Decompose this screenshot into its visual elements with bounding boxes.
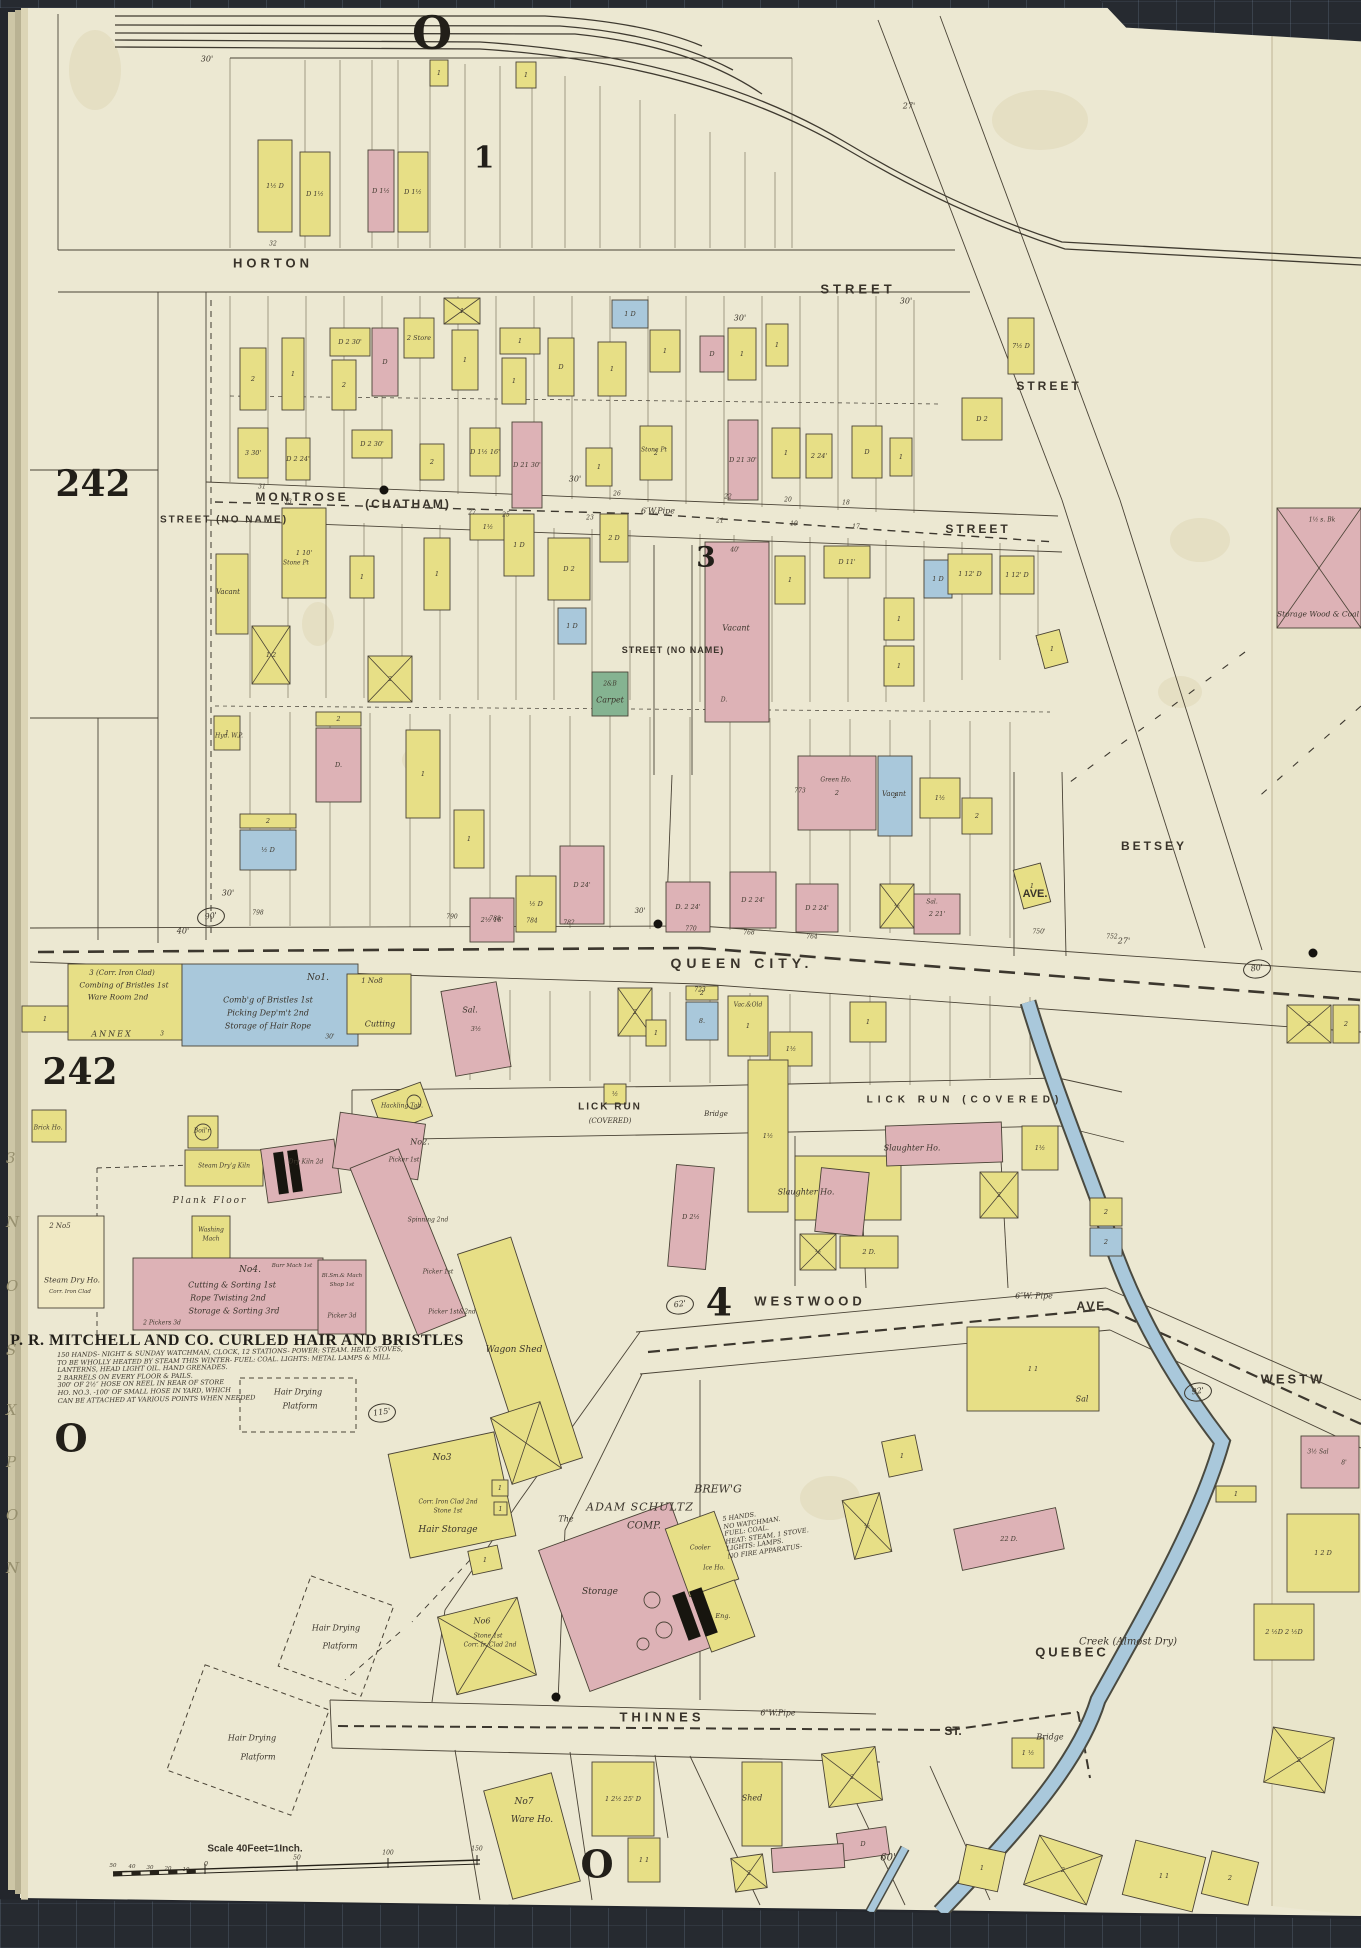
building-footprint [728, 420, 758, 500]
building [1287, 1514, 1359, 1592]
building-footprint [454, 810, 484, 868]
building [316, 728, 361, 802]
scale-bar-box [150, 1871, 159, 1875]
building [282, 338, 304, 410]
building [261, 1139, 342, 1203]
building-footprint [962, 798, 992, 834]
building [800, 1234, 836, 1270]
building [948, 554, 992, 594]
building-footprint [318, 1260, 366, 1334]
sanborn-map-page: 1½ DD 1½D 1½D 1½1121D 2 30'2D2 Store1111… [0, 0, 1361, 1948]
building-footprint [430, 60, 448, 86]
building [1012, 1738, 1044, 1768]
book-page-edge [15, 10, 21, 1894]
building [516, 876, 556, 932]
building [38, 1216, 104, 1308]
building-footprint [772, 428, 800, 478]
building-footprint [1287, 1514, 1359, 1592]
building-footprint [452, 330, 478, 390]
building [558, 608, 586, 644]
building [815, 1168, 869, 1237]
building [548, 338, 574, 396]
building [133, 1258, 323, 1330]
building-footprint [1012, 1738, 1044, 1768]
building-footprint [650, 330, 680, 372]
building-footprint [852, 426, 882, 478]
book-page-edge [8, 12, 15, 1890]
building-footprint [612, 300, 648, 328]
building [728, 420, 758, 500]
building-footprint [958, 1844, 1005, 1891]
scale-bar-box [168, 1870, 177, 1874]
building [516, 62, 536, 88]
building-footprint [470, 898, 514, 942]
building [878, 756, 912, 836]
building-footprint [185, 1150, 263, 1186]
building [470, 428, 500, 476]
building-footprint [352, 430, 392, 458]
building-footprint [806, 434, 832, 478]
building-footprint [332, 360, 356, 410]
building-footprint [766, 324, 788, 366]
building [980, 1172, 1018, 1218]
building-footprint [350, 556, 374, 598]
building-footprint [494, 1502, 507, 1515]
building-footprint [504, 514, 534, 576]
building-footprint [600, 514, 628, 562]
building-footprint [68, 964, 182, 1040]
building [604, 1084, 626, 1104]
building-footprint [316, 712, 361, 726]
building-footprint [560, 846, 604, 924]
building-footprint [686, 986, 718, 1000]
building-footprint [798, 756, 876, 830]
building-footprint [404, 318, 434, 358]
building [884, 598, 914, 640]
building [258, 140, 292, 232]
building-footprint [884, 598, 914, 640]
building-footprint [728, 328, 756, 380]
building-footprint [705, 542, 769, 722]
building [1301, 1436, 1359, 1488]
building [728, 996, 768, 1056]
building-footprint [604, 1084, 626, 1104]
scale-bar-box [113, 1872, 122, 1876]
building [492, 1480, 508, 1496]
building [470, 514, 506, 540]
building-footprint [133, 1258, 323, 1330]
building [730, 872, 776, 928]
building [775, 556, 805, 604]
building [368, 150, 394, 232]
building-footprint [775, 556, 805, 604]
building-footprint [628, 1838, 660, 1882]
building [962, 798, 992, 834]
building-footprint [686, 1002, 718, 1040]
building-footprint [730, 872, 776, 928]
building-footprint [884, 646, 914, 686]
building [686, 986, 718, 1000]
building [398, 152, 428, 232]
building [748, 1060, 788, 1212]
building-footprint [492, 1480, 508, 1496]
building [700, 336, 724, 372]
building [1022, 1126, 1058, 1170]
building [1090, 1198, 1122, 1226]
building [731, 1854, 767, 1892]
building [22, 1006, 68, 1032]
building [330, 328, 370, 356]
building [192, 1216, 230, 1258]
building [368, 656, 412, 702]
building [742, 1762, 782, 1846]
building-footprint [771, 1844, 844, 1873]
building-footprint [1301, 1436, 1359, 1488]
building-footprint [885, 1122, 1002, 1166]
building [68, 964, 182, 1040]
building-footprint [240, 830, 296, 870]
building-footprint [558, 608, 586, 644]
building-footprint [316, 728, 361, 802]
building [824, 546, 870, 578]
building [1000, 556, 1034, 594]
building-footprint [728, 996, 768, 1056]
building [332, 360, 356, 410]
building-footprint [347, 974, 411, 1034]
building-footprint [920, 778, 960, 818]
building [920, 778, 960, 818]
building [240, 814, 296, 828]
building-footprint [890, 438, 912, 476]
building-footprint [815, 1168, 869, 1237]
building-footprint [748, 1060, 788, 1212]
building [424, 538, 450, 610]
building-footprint [967, 1327, 1099, 1411]
building [586, 448, 612, 486]
building [958, 1844, 1005, 1891]
building-footprint [188, 1116, 218, 1148]
building-footprint [592, 672, 628, 716]
building-footprint [914, 894, 960, 934]
building [512, 422, 542, 508]
building [890, 438, 912, 476]
building [352, 430, 392, 458]
paper-stain [302, 602, 334, 646]
building [300, 152, 330, 236]
building-footprint [592, 1762, 654, 1836]
building [500, 328, 540, 354]
building [560, 846, 604, 924]
building [840, 1236, 898, 1268]
building [216, 554, 248, 634]
scale-bar-box [131, 1871, 140, 1875]
building-footprint [1022, 1126, 1058, 1170]
building [686, 1002, 718, 1040]
building [806, 434, 832, 478]
building-footprint [192, 1216, 230, 1258]
building-footprint [882, 1435, 923, 1477]
building-footprint [38, 1216, 104, 1308]
building [350, 556, 374, 598]
paper-stain [69, 30, 121, 110]
building-footprint [640, 426, 672, 480]
building [1090, 1228, 1122, 1256]
building [504, 514, 534, 576]
building-footprint [424, 538, 450, 610]
building [967, 1327, 1099, 1411]
building [650, 330, 680, 372]
building-footprint [824, 546, 870, 578]
building [430, 60, 448, 86]
building [598, 342, 626, 396]
building-footprint [500, 328, 540, 354]
building [646, 1020, 666, 1046]
building-footprint [840, 1236, 898, 1268]
building-footprint [261, 1139, 342, 1203]
building-footprint [420, 444, 444, 480]
building [502, 358, 526, 404]
building-footprint [240, 348, 266, 410]
building [282, 508, 326, 598]
building [182, 964, 358, 1046]
building-footprint [598, 342, 626, 396]
building [240, 830, 296, 870]
building-footprint [238, 428, 268, 478]
building [705, 542, 769, 722]
building-footprint [282, 338, 304, 410]
building-footprint [368, 150, 394, 232]
building [470, 898, 514, 942]
building-footprint [182, 964, 358, 1046]
building [406, 730, 440, 818]
building [494, 1502, 507, 1515]
building [454, 810, 484, 868]
building-footprint [1008, 318, 1034, 374]
building-footprint [282, 508, 326, 598]
building [885, 1122, 1002, 1166]
building-footprint [1333, 1005, 1359, 1043]
building [880, 884, 914, 928]
building [252, 626, 290, 684]
building-footprint [700, 336, 724, 372]
building [1277, 508, 1361, 628]
building-footprint [516, 876, 556, 932]
building [214, 716, 240, 750]
building [640, 426, 672, 480]
building-footprint [516, 62, 536, 88]
building-footprint [1216, 1486, 1256, 1502]
paper-stain [1170, 518, 1230, 562]
building [1287, 1005, 1331, 1043]
building [771, 1844, 844, 1873]
building [796, 884, 838, 932]
building [822, 1747, 883, 1808]
building-footprint [948, 554, 992, 594]
building-footprint [962, 398, 1002, 440]
building [798, 756, 876, 830]
building [32, 1110, 66, 1142]
building [962, 398, 1002, 440]
building [404, 318, 434, 358]
building-footprint [646, 1020, 666, 1046]
building-footprint [330, 328, 370, 356]
building-footprint [372, 328, 398, 396]
building-footprint [850, 1002, 886, 1042]
building [1254, 1604, 1314, 1660]
building [1333, 1005, 1359, 1043]
scale-bar-box [187, 1869, 196, 1873]
building-footprint [548, 538, 590, 600]
building [548, 538, 590, 600]
building [728, 328, 756, 380]
building [766, 324, 788, 366]
building-footprint [240, 814, 296, 828]
building-footprint [398, 152, 428, 232]
building [772, 428, 800, 478]
book-page-edge [21, 8, 28, 1900]
building-footprint [1000, 556, 1034, 594]
building [347, 974, 411, 1034]
building-footprint [32, 1110, 66, 1142]
building [188, 1116, 218, 1148]
building-footprint [216, 554, 248, 634]
building [666, 882, 710, 932]
building [882, 1435, 923, 1477]
building-footprint [1090, 1198, 1122, 1226]
building-footprint [300, 152, 330, 236]
building [914, 894, 960, 934]
paper-stain [1158, 676, 1202, 708]
building [420, 444, 444, 480]
building [884, 646, 914, 686]
building [592, 1762, 654, 1836]
building-footprint [502, 358, 526, 404]
building-footprint [470, 428, 500, 476]
building [1216, 1486, 1256, 1502]
building-footprint [214, 716, 240, 750]
building [628, 1838, 660, 1882]
building-footprint [512, 422, 542, 508]
building [1264, 1727, 1335, 1793]
building [238, 428, 268, 478]
map-canvas [0, 0, 1361, 1948]
building-footprint [258, 140, 292, 232]
building-footprint [22, 1006, 68, 1032]
building [318, 1260, 366, 1334]
building-footprint [586, 448, 612, 486]
building-footprint [666, 882, 710, 932]
building [286, 438, 310, 480]
building [444, 298, 480, 324]
building [852, 426, 882, 478]
building-footprint [286, 438, 310, 480]
building-footprint [796, 884, 838, 932]
building-footprint [1254, 1604, 1314, 1660]
building [592, 672, 628, 716]
building-footprint [470, 514, 506, 540]
building [185, 1150, 263, 1186]
building-footprint [878, 756, 912, 836]
paper-stain [992, 90, 1088, 150]
building [600, 514, 628, 562]
building [316, 712, 361, 726]
building [850, 1002, 886, 1042]
building-footprint [1090, 1228, 1122, 1256]
building [452, 330, 478, 390]
building-footprint [406, 730, 440, 818]
building [612, 300, 648, 328]
building [1008, 318, 1034, 374]
building-footprint [742, 1762, 782, 1846]
building [240, 348, 266, 410]
building-footprint [548, 338, 574, 396]
building [372, 328, 398, 396]
